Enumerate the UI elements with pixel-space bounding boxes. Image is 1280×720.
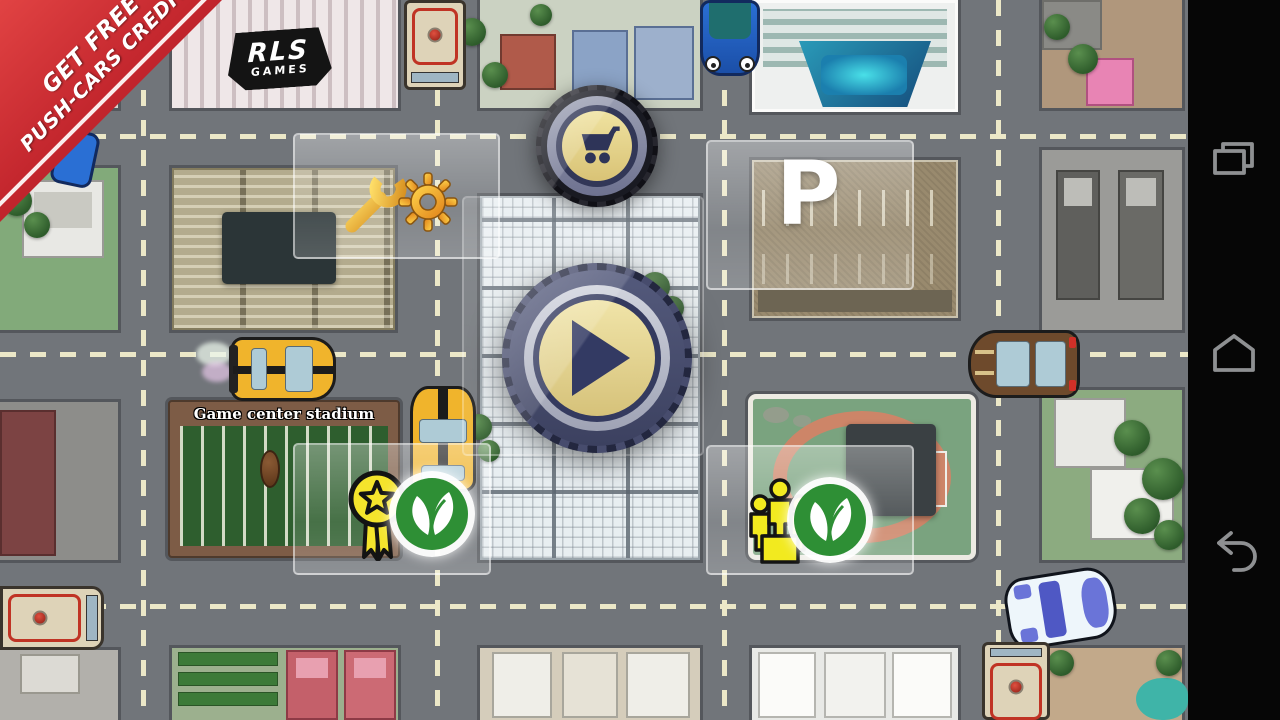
rls-sign-line2: GAMES <box>250 62 309 79</box>
city-block <box>480 648 700 720</box>
building <box>500 34 556 90</box>
brown-sports-car <box>968 330 1080 398</box>
truck-windshield <box>990 648 1042 657</box>
pond <box>1136 678 1188 720</box>
car-windshield <box>285 346 313 392</box>
building <box>758 652 816 718</box>
building <box>1056 170 1100 300</box>
lane-marking <box>722 0 727 720</box>
city-block-arena <box>752 0 958 112</box>
city-block <box>1042 150 1182 330</box>
truck-roof-detail <box>33 611 48 626</box>
gear-icon[interactable] <box>398 172 458 232</box>
back-button[interactable] <box>1210 526 1258 574</box>
car-stripe <box>975 350 994 354</box>
headlight <box>739 56 755 72</box>
car-window <box>1013 584 1032 601</box>
tree <box>1142 458 1184 500</box>
car-roof <box>709 3 750 39</box>
building <box>20 654 80 694</box>
taillight <box>1069 380 1076 391</box>
recents-button[interactable] <box>1210 138 1258 182</box>
brand-leaf-badge[interactable] <box>787 477 873 563</box>
rls-games-sign: RLS GAMES <box>225 26 333 91</box>
truck-roof-detail <box>428 27 443 42</box>
car-windshield <box>419 419 467 443</box>
brand-leaf-badge[interactable] <box>389 471 475 557</box>
city-block <box>752 648 958 720</box>
leaf-logo-icon <box>389 471 475 557</box>
exhaust-smoke <box>202 362 232 382</box>
game-screen: Game center stadium <box>0 0 1280 720</box>
play-button[interactable] <box>502 263 692 453</box>
tree <box>1114 420 1150 456</box>
track-detail <box>763 407 789 423</box>
football <box>260 450 280 488</box>
car-window <box>1079 576 1111 629</box>
cream-truck <box>982 642 1050 720</box>
leaf-logo-icon <box>787 477 873 563</box>
tree <box>1044 14 1070 40</box>
building <box>626 652 690 718</box>
lane-marking <box>700 352 1188 357</box>
parking-label[interactable]: P <box>776 152 856 236</box>
tree <box>24 212 50 238</box>
lane-marking <box>435 0 440 720</box>
car-window <box>1035 341 1067 387</box>
building <box>562 652 618 718</box>
tree <box>1156 650 1182 676</box>
tree <box>1048 650 1074 676</box>
city-block <box>0 402 118 560</box>
cream-truck <box>404 0 466 90</box>
car-window <box>1020 627 1039 644</box>
car-stripe <box>233 366 333 374</box>
truck-roof-detail <box>1009 679 1024 694</box>
car-stripe <box>975 371 994 375</box>
hedge <box>178 672 278 686</box>
home-button[interactable] <box>1210 330 1258 374</box>
building <box>824 652 886 718</box>
building <box>344 650 396 720</box>
building <box>286 650 338 720</box>
yellow-sports-car <box>230 337 336 401</box>
city-block <box>0 650 118 720</box>
parking-lane <box>758 290 952 312</box>
stadium-label: Game center stadium <box>170 407 398 422</box>
tree <box>482 62 508 88</box>
white-blue-car <box>1001 564 1121 652</box>
lane-marking <box>141 0 146 720</box>
city-block <box>172 648 398 720</box>
tree <box>1154 520 1184 550</box>
taillight <box>1069 337 1076 348</box>
tree <box>1068 44 1098 74</box>
arena-sign-core <box>821 55 907 95</box>
building <box>634 26 694 100</box>
building <box>1118 170 1164 300</box>
car-window <box>251 348 267 390</box>
android-nav-bar <box>1188 0 1280 720</box>
hedge <box>178 652 278 666</box>
car-windshield <box>1038 580 1067 638</box>
blue-car <box>700 0 760 76</box>
button-gloss <box>536 85 658 207</box>
settings-button[interactable] <box>336 164 456 242</box>
car-windshield <box>996 341 1030 387</box>
headlight <box>705 56 721 72</box>
truck-windshield <box>86 595 98 641</box>
tree <box>530 4 552 26</box>
button-gloss <box>502 263 692 453</box>
shop-button[interactable] <box>536 85 658 207</box>
cream-truck <box>0 586 104 650</box>
truck-windshield <box>411 72 458 83</box>
building <box>892 652 952 718</box>
building <box>492 652 552 718</box>
hedge <box>178 692 278 706</box>
building <box>0 410 56 556</box>
